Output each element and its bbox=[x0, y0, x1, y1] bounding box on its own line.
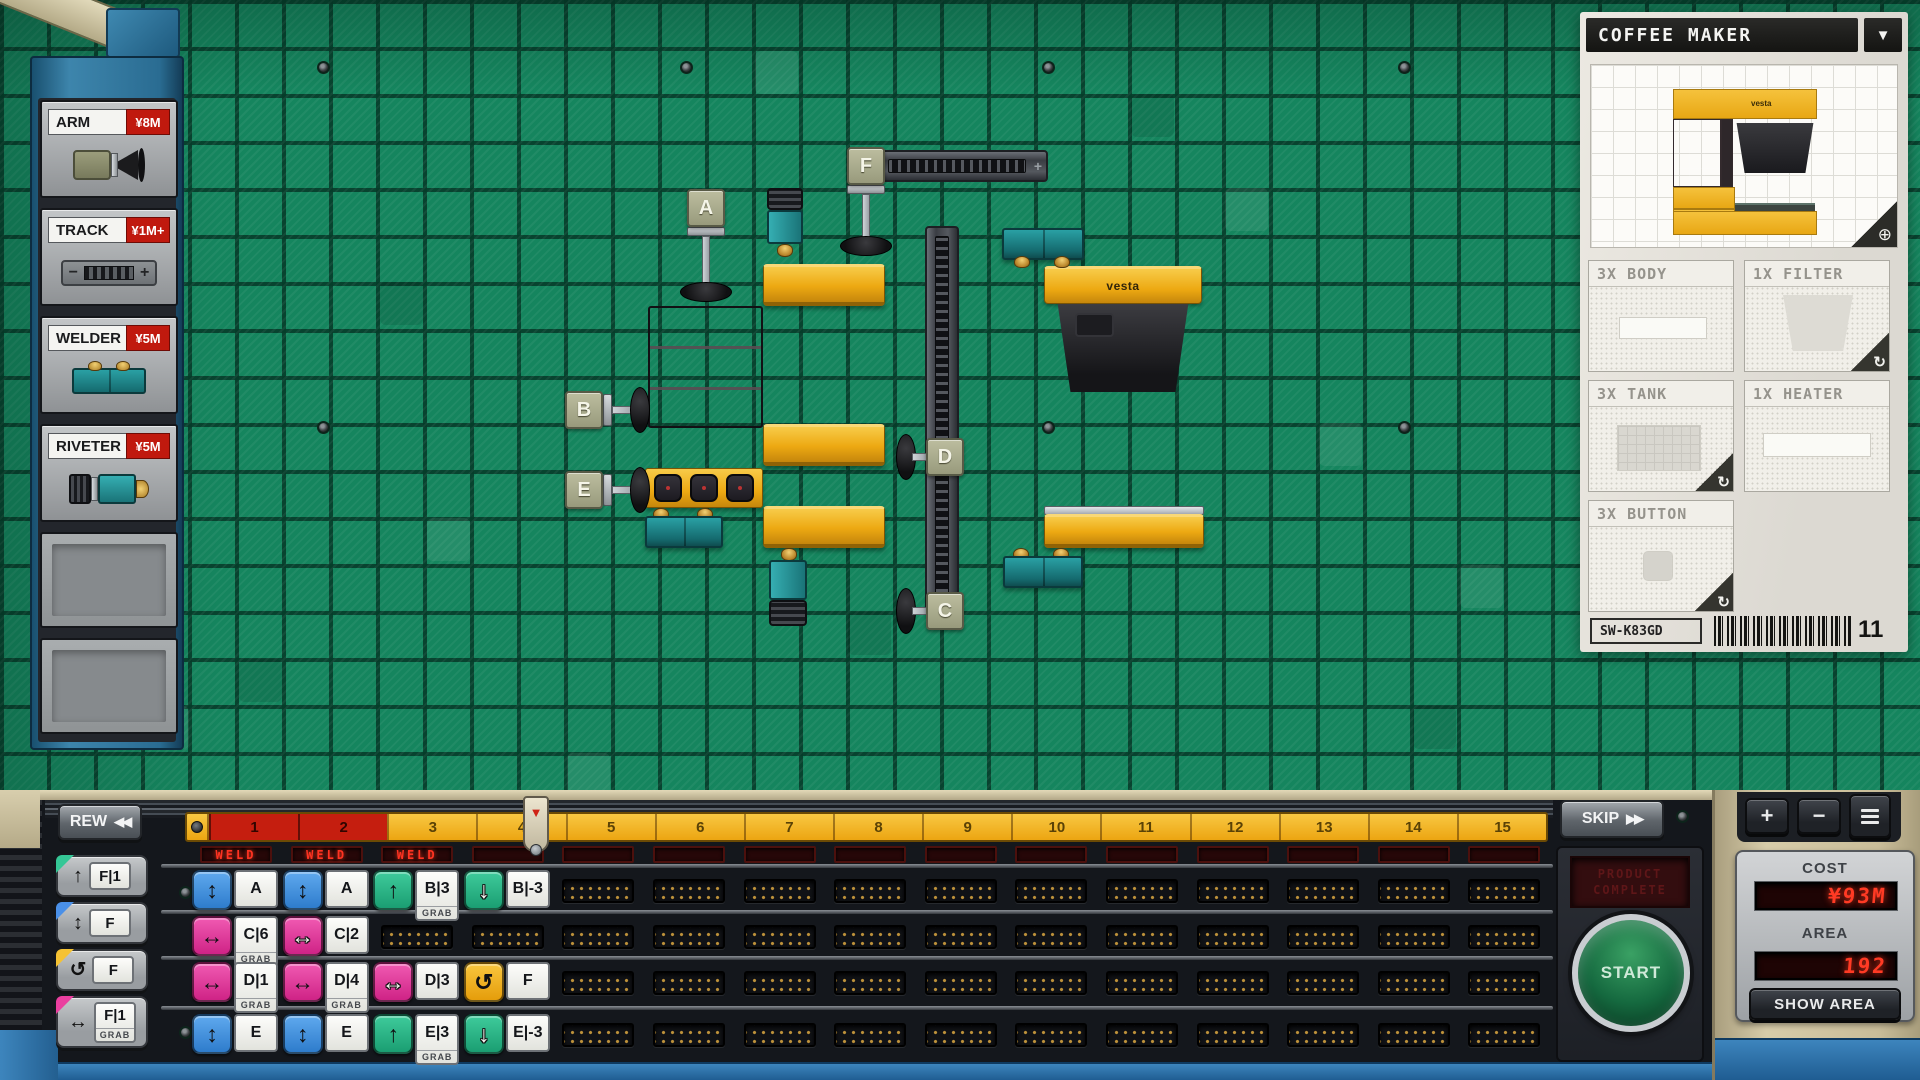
shop-item-riveter[interactable]: RIVETER ¥5M bbox=[40, 424, 178, 522]
conveyor[interactable] bbox=[763, 264, 885, 306]
arm-icon-lip bbox=[138, 148, 145, 182]
track-icon-slot bbox=[84, 266, 134, 280]
move-horizontal-icon: ↔ bbox=[373, 962, 413, 1002]
welder-nozzle bbox=[1014, 256, 1030, 268]
command-tile[interactable]: ↓B|-3 bbox=[464, 870, 550, 910]
palette-color-corner bbox=[56, 855, 74, 873]
welder-icon-seam bbox=[109, 370, 111, 392]
status-screen: PRODUCT COMPLETE bbox=[1570, 856, 1690, 908]
empty-socket[interactable] bbox=[1378, 971, 1450, 995]
raise-icon: ↑ bbox=[73, 866, 83, 886]
grab-label: GRAB bbox=[417, 1050, 457, 1063]
welder-machine[interactable] bbox=[1002, 228, 1084, 260]
command-text: F bbox=[91, 911, 129, 935]
part-box-tank: 3X TANK ↻ bbox=[1588, 380, 1734, 492]
arm-letter: F bbox=[860, 155, 872, 178]
rewind-label: REW bbox=[70, 813, 107, 831]
empty-socket[interactable] bbox=[653, 971, 725, 995]
timeline-led bbox=[1015, 846, 1087, 863]
move-vertical-icon: ↕ bbox=[192, 870, 232, 910]
ruler-segment[interactable]: 1 bbox=[209, 814, 298, 840]
skip-label: SKIP bbox=[1582, 810, 1619, 828]
arm-letter: C bbox=[938, 600, 952, 623]
blueprint-preview: vesta ⊕ bbox=[1590, 64, 1898, 248]
status-line: COMPLETE bbox=[1593, 883, 1667, 897]
rotate-icon: ↺ bbox=[464, 962, 504, 1002]
empty-socket[interactable] bbox=[925, 925, 997, 949]
floor-screw bbox=[317, 421, 330, 434]
welder-machine[interactable] bbox=[645, 516, 723, 548]
arm-icon-cone bbox=[118, 150, 138, 180]
arm-suction-cup bbox=[680, 282, 732, 302]
ruler-segment[interactable]: 2 bbox=[298, 814, 387, 840]
riveter-machine[interactable] bbox=[769, 560, 807, 600]
arm-tag-e[interactable]: E bbox=[565, 471, 603, 509]
move-vertical-icon: ↕ bbox=[283, 870, 323, 910]
welder-icon-body bbox=[72, 368, 146, 394]
command-tile[interactable]: ↔D|3 bbox=[373, 962, 459, 1002]
arm-icon-ring bbox=[111, 153, 118, 177]
timeline-led bbox=[1197, 846, 1269, 863]
floor-screw bbox=[317, 61, 330, 74]
command-plate: C|6GRAB bbox=[234, 916, 278, 967]
product-panel: COFFEE MAKER ▼ vesta ⊕ 3X BODY 1X FILTER… bbox=[1580, 12, 1908, 652]
empty-socket[interactable] bbox=[562, 1023, 634, 1047]
empty-socket[interactable] bbox=[562, 879, 634, 903]
shop-item-arm[interactable]: ARM ¥8M bbox=[40, 100, 178, 198]
filter-part[interactable] bbox=[1052, 304, 1194, 392]
empty-socket[interactable] bbox=[653, 879, 725, 903]
command-tile[interactable]: ↔C|2 bbox=[283, 916, 369, 956]
arm-icon-body bbox=[73, 150, 111, 180]
led-text: WELD bbox=[397, 848, 438, 862]
start-button[interactable]: START bbox=[1572, 914, 1690, 1032]
command-text: A bbox=[327, 872, 367, 906]
floor-patch bbox=[239, 659, 282, 702]
empty-socket[interactable] bbox=[834, 879, 906, 903]
floor-screw bbox=[1398, 61, 1411, 74]
empty-socket[interactable] bbox=[1468, 925, 1540, 949]
preview-body bbox=[1673, 119, 1721, 187]
empty-socket[interactable] bbox=[1287, 971, 1359, 995]
minus-icon: − bbox=[69, 264, 78, 282]
preview-brand: vesta bbox=[1751, 99, 1771, 108]
part-thumb-body bbox=[1619, 317, 1707, 339]
part-thumb-filter bbox=[1783, 295, 1853, 351]
command-tile[interactable]: ↑E|3GRAB bbox=[373, 1014, 459, 1065]
shop-item-price: ¥5M bbox=[126, 325, 170, 351]
button-strip-part[interactable] bbox=[645, 468, 763, 508]
cost-label: COST bbox=[1737, 860, 1913, 877]
rotate-icon: ↺ bbox=[70, 960, 87, 980]
command-tile[interactable]: ↔C|6GRAB bbox=[192, 916, 278, 967]
move-vertical-icon: ↕ bbox=[73, 913, 83, 933]
ruler-segment[interactable]: 10 bbox=[1011, 814, 1100, 840]
command-text: D|4 bbox=[327, 964, 367, 998]
floor-patch bbox=[427, 518, 470, 561]
preview-base bbox=[1673, 211, 1817, 235]
command-text: D|1 bbox=[236, 964, 276, 998]
arm-collar bbox=[687, 227, 725, 236]
command-plate: D|3 bbox=[415, 962, 459, 1000]
command-plate: F|1 bbox=[89, 862, 131, 890]
floor-patch bbox=[1319, 423, 1362, 466]
ruler-segment[interactable]: 3 bbox=[387, 814, 476, 840]
arm-tag-a[interactable]: A bbox=[687, 189, 725, 227]
ruler-segment[interactable]: 13 bbox=[1279, 814, 1368, 840]
timeline-led bbox=[653, 846, 725, 863]
riveter-icon-ring bbox=[91, 477, 98, 501]
show-area-label: SHOW AREA bbox=[1774, 996, 1876, 1013]
shop-item-name: RIVETER bbox=[48, 433, 130, 459]
track-extend-icon: + bbox=[1034, 158, 1042, 174]
empty-socket[interactable] bbox=[1287, 925, 1359, 949]
command-text: B|3 bbox=[417, 872, 457, 906]
command-tile[interactable]: ↕E bbox=[192, 1014, 278, 1054]
empty-socket[interactable] bbox=[653, 925, 725, 949]
empty-socket[interactable] bbox=[562, 971, 634, 995]
command-tile[interactable]: ↕A bbox=[192, 870, 278, 910]
product-count: 11 bbox=[1858, 616, 1883, 644]
empty-socket[interactable] bbox=[1106, 1023, 1178, 1047]
track-slot bbox=[935, 236, 949, 602]
command-tile[interactable]: ↓E|-3 bbox=[464, 1014, 550, 1054]
ruler-segment[interactable]: 9 bbox=[922, 814, 1011, 840]
move-horizontal-icon: ↔ bbox=[192, 916, 232, 956]
empty-socket[interactable] bbox=[1197, 971, 1269, 995]
lower-icon: ↓ bbox=[464, 870, 504, 910]
rotate-icon: ↻ bbox=[1717, 593, 1730, 611]
dropdown-arrow-icon[interactable]: ▼ bbox=[1864, 18, 1902, 52]
arm-tag-d[interactable]: D bbox=[926, 438, 964, 476]
arm-collar bbox=[603, 394, 612, 426]
stats-panel: COST ¥93M AREA 192 SHOW AREA bbox=[1735, 850, 1915, 1022]
playhead-marker-icon: ▼ bbox=[530, 805, 543, 820]
empty-socket[interactable] bbox=[744, 925, 816, 949]
empty-recess bbox=[52, 544, 166, 616]
area-label: AREA bbox=[1737, 925, 1913, 942]
sequencer: 123456789101112131415 ▼ WELD↕A↔C|6GRAB↔D… bbox=[153, 790, 1553, 1062]
empty-socket[interactable] bbox=[1106, 879, 1178, 903]
floor-patch bbox=[380, 282, 423, 325]
rotate-corner[interactable]: ↻ bbox=[1695, 453, 1733, 491]
ruler-segment[interactable]: 11 bbox=[1100, 814, 1189, 840]
timeline-led: WELD bbox=[381, 846, 453, 863]
part-box-filter: 1X FILTER ↻ bbox=[1744, 260, 1890, 372]
sequencer-grid: WELD↕A↔C|6GRAB↔D|1GRAB↕EWELD↕A↔C|2↔D|4GR… bbox=[192, 846, 1557, 1062]
timeline-led bbox=[925, 846, 997, 863]
empty-socket[interactable] bbox=[1015, 1023, 1087, 1047]
command-text: F bbox=[94, 958, 132, 982]
empty-socket[interactable] bbox=[1378, 925, 1450, 949]
pod-base bbox=[1715, 1038, 1920, 1080]
move-horizontal-icon: ↔ bbox=[192, 962, 232, 1002]
command-text: D|3 bbox=[417, 964, 457, 998]
welder-machine[interactable] bbox=[1003, 556, 1083, 588]
command-plate: E|-3 bbox=[506, 1014, 550, 1052]
preview-lid bbox=[1673, 89, 1817, 119]
part-box-heater: 1X HEATER bbox=[1744, 380, 1890, 492]
empty-socket[interactable] bbox=[1015, 879, 1087, 903]
shop-empty-slot bbox=[40, 532, 178, 628]
command-text: E bbox=[327, 1016, 367, 1050]
floor-patch bbox=[848, 612, 891, 655]
shop-item-price: ¥8M bbox=[126, 109, 170, 135]
command-tile[interactable]: ↕E bbox=[283, 1014, 369, 1054]
palette-rotate-command[interactable]: ↺ F bbox=[56, 949, 148, 991]
empty-socket[interactable] bbox=[834, 1023, 906, 1047]
part-thumb-heater bbox=[1763, 433, 1871, 457]
product-selector[interactable]: COFFEE MAKER bbox=[1586, 18, 1858, 52]
show-area-button[interactable]: SHOW AREA bbox=[1749, 988, 1901, 1020]
command-tile[interactable]: ↕A bbox=[283, 870, 369, 910]
empty-socket[interactable] bbox=[1015, 971, 1087, 995]
vertical-track[interactable] bbox=[925, 226, 959, 612]
command-plate: F bbox=[92, 956, 134, 984]
command-plate: A bbox=[234, 870, 278, 908]
plus-icon: + bbox=[140, 264, 149, 282]
rotate-icon: ↻ bbox=[1873, 353, 1886, 371]
empty-socket[interactable] bbox=[1468, 879, 1540, 903]
rotate-icon: ↻ bbox=[1717, 473, 1730, 491]
ruler-segment[interactable]: 6 bbox=[655, 814, 744, 840]
empty-socket[interactable] bbox=[472, 925, 544, 949]
grab-label: GRAB bbox=[236, 998, 276, 1011]
app: + vesta bbox=[0, 0, 1920, 1080]
ruler-segment[interactable]: 5 bbox=[566, 814, 655, 840]
conveyor[interactable] bbox=[763, 506, 885, 548]
horizontal-track[interactable]: + bbox=[880, 150, 1048, 182]
empty-socket[interactable] bbox=[925, 971, 997, 995]
timeline-led bbox=[562, 846, 634, 863]
arm-suction-cup bbox=[630, 387, 650, 433]
ruler-screw bbox=[191, 821, 203, 833]
ruler-segment[interactable]: 7 bbox=[744, 814, 833, 840]
empty-socket[interactable] bbox=[1378, 1023, 1450, 1047]
preview-mid bbox=[1673, 187, 1735, 209]
part-thumb-tank bbox=[1617, 425, 1701, 471]
track-icon-bar: − + bbox=[61, 260, 157, 286]
ruler-segment[interactable]: 8 bbox=[833, 814, 922, 840]
zoom-out-button[interactable]: − bbox=[1797, 798, 1841, 834]
command-tile[interactable]: ↔D|1GRAB bbox=[192, 962, 278, 1013]
command-plate: C|2 bbox=[325, 916, 369, 954]
led-text: WELD bbox=[306, 848, 347, 862]
arm-letter: D bbox=[938, 446, 952, 469]
start-label: START bbox=[1601, 963, 1661, 983]
empty-socket[interactable] bbox=[1468, 1023, 1540, 1047]
floor-patch bbox=[1225, 188, 1268, 231]
command-plate: F bbox=[89, 909, 131, 937]
zoom-corner[interactable]: ⊕ bbox=[1851, 201, 1897, 247]
command-text: F|1 bbox=[96, 1004, 134, 1028]
coffee-maker-lid-part[interactable]: vesta bbox=[1044, 266, 1202, 304]
console-corner bbox=[0, 790, 40, 848]
arm-rod bbox=[702, 236, 710, 284]
empty-socket[interactable] bbox=[1197, 925, 1269, 949]
command-text: F bbox=[508, 964, 548, 998]
empty-socket[interactable] bbox=[653, 1023, 725, 1047]
welder-icon bbox=[48, 356, 170, 406]
palette-move-vertical-command[interactable]: ↕ F bbox=[56, 902, 148, 944]
grab-label: GRAB bbox=[417, 906, 457, 919]
command-plate: E|3GRAB bbox=[415, 1014, 459, 1065]
ruler-segment[interactable]: 12 bbox=[1190, 814, 1279, 840]
track-slot bbox=[888, 159, 1026, 173]
ruler-segment[interactable]: 14 bbox=[1368, 814, 1457, 840]
empty-socket[interactable] bbox=[1106, 925, 1178, 949]
empty-socket[interactable] bbox=[925, 879, 997, 903]
command-plate: B|-3 bbox=[506, 870, 550, 908]
move-horizontal-icon: ↔ bbox=[68, 1012, 88, 1032]
preview-base-plate bbox=[1735, 203, 1815, 211]
empty-recess bbox=[52, 650, 166, 722]
welder-seam bbox=[684, 518, 686, 546]
command-plate: F bbox=[506, 962, 550, 1000]
menu-icon bbox=[1861, 809, 1879, 824]
riveter-cap bbox=[769, 600, 807, 626]
arm-collar bbox=[847, 185, 885, 194]
empty-socket[interactable] bbox=[834, 971, 906, 995]
empty-socket[interactable] bbox=[1197, 879, 1269, 903]
grab-label: GRAB bbox=[327, 998, 367, 1011]
raise-icon: ↑ bbox=[373, 870, 413, 910]
arm-suction-cup bbox=[630, 467, 650, 513]
barcode bbox=[1714, 616, 1852, 646]
feeder-joint bbox=[106, 8, 180, 58]
playhead[interactable]: ▼ bbox=[523, 796, 549, 852]
lower-icon: ↓ bbox=[464, 1014, 504, 1054]
button-part bbox=[654, 474, 682, 502]
ruler-segment[interactable]: 4 bbox=[476, 814, 565, 840]
arm-suction-cup bbox=[840, 236, 892, 256]
riveter-icon-body bbox=[98, 474, 136, 504]
riveter-machine[interactable] bbox=[767, 188, 803, 210]
shop-empty-slot bbox=[40, 638, 178, 734]
stats-pod: + − COST ¥93M AREA 192 SHOW AREA bbox=[1712, 790, 1920, 1080]
empty-socket[interactable] bbox=[744, 1023, 816, 1047]
command-plate: A bbox=[325, 870, 369, 908]
command-plate: D|1GRAB bbox=[234, 962, 278, 1013]
panel-screw bbox=[179, 1026, 192, 1039]
body-part-stack[interactable] bbox=[648, 306, 763, 428]
empty-socket[interactable] bbox=[1015, 925, 1087, 949]
cost-value: ¥93M bbox=[1827, 884, 1888, 908]
rewind-button[interactable]: REW ◀◀ bbox=[58, 804, 142, 840]
timeline-led bbox=[1378, 846, 1450, 863]
command-tile[interactable]: ↔D|4GRAB bbox=[283, 962, 369, 1013]
area-display: 192 bbox=[1755, 952, 1897, 980]
arm-tag-c[interactable]: C bbox=[926, 592, 964, 630]
status-line: PRODUCT bbox=[1598, 867, 1663, 881]
arm-letter: E bbox=[577, 479, 590, 502]
menu-button[interactable] bbox=[1849, 794, 1891, 838]
floor-screw bbox=[1042, 61, 1055, 74]
empty-socket[interactable] bbox=[1378, 879, 1450, 903]
riveter-body bbox=[767, 210, 803, 244]
riveter-tip bbox=[777, 244, 793, 257]
empty-socket[interactable] bbox=[744, 879, 816, 903]
part-label: 3X TANK bbox=[1589, 381, 1733, 407]
timeline-led: WELD bbox=[200, 846, 272, 863]
welder-nozzle bbox=[1054, 256, 1070, 268]
command-tile[interactable]: ↑B|3GRAB bbox=[373, 870, 459, 921]
empty-socket[interactable] bbox=[1468, 971, 1540, 995]
empty-socket[interactable] bbox=[834, 925, 906, 949]
ruler-segment[interactable]: 15 bbox=[1457, 814, 1546, 840]
skip-button[interactable]: SKIP ▶▶ bbox=[1560, 800, 1664, 838]
empty-socket[interactable] bbox=[1287, 879, 1359, 903]
arm-rod bbox=[862, 194, 870, 238]
floor-patch bbox=[1413, 706, 1456, 749]
riveter-icon bbox=[48, 464, 170, 514]
floor-patch bbox=[1131, 94, 1174, 137]
command-plate: E bbox=[325, 1014, 369, 1052]
command-text: B|-3 bbox=[508, 872, 548, 906]
shop-item-track[interactable]: TRACK ¥1M+ − + bbox=[40, 208, 178, 306]
zoom-in-button[interactable]: + bbox=[1745, 798, 1789, 834]
shop-item-welder[interactable]: WELDER ¥5M bbox=[40, 316, 178, 414]
empty-socket[interactable] bbox=[381, 925, 453, 949]
welder-icon-nozzle bbox=[88, 361, 102, 371]
empty-socket[interactable] bbox=[1287, 1023, 1359, 1047]
floor-patch bbox=[1460, 565, 1503, 608]
command-plate: F|1 GRAB bbox=[94, 1002, 136, 1043]
rotate-corner[interactable]: ↻ bbox=[1695, 573, 1733, 611]
part-label: 3X BODY bbox=[1589, 261, 1733, 287]
command-tile[interactable]: ↺F bbox=[464, 962, 550, 1002]
timeline-led bbox=[744, 846, 816, 863]
arm-tag-f[interactable]: F bbox=[847, 147, 885, 185]
arm-icon bbox=[48, 140, 170, 190]
command-text: F|1 bbox=[91, 864, 129, 888]
conveyor[interactable] bbox=[1044, 514, 1204, 548]
welder-seam bbox=[1043, 230, 1045, 258]
part-label: 3X BUTTON bbox=[1589, 501, 1733, 527]
empty-socket[interactable] bbox=[1197, 1023, 1269, 1047]
move-vertical-icon: ↕ bbox=[283, 1014, 323, 1054]
arm-tag-b[interactable]: B bbox=[565, 391, 603, 429]
palette-move-horizontal-command[interactable]: ↔ F|1 GRAB bbox=[56, 996, 148, 1048]
palette-raise-command[interactable]: ↑ F|1 bbox=[56, 855, 148, 897]
floor-patch bbox=[755, 51, 798, 94]
rotate-corner[interactable]: ↻ bbox=[1851, 333, 1889, 371]
empty-socket[interactable] bbox=[744, 971, 816, 995]
move-vertical-icon: ↕ bbox=[192, 1014, 232, 1054]
program-console: REW ◀◀ ↑ F|1 ↕ F ↺ F ↔ F|1 GRAB bbox=[0, 790, 1920, 1080]
rewind-icon: ◀◀ bbox=[114, 814, 130, 830]
track-icon: − + bbox=[48, 248, 170, 298]
empty-socket[interactable] bbox=[1106, 971, 1178, 995]
raise-icon: ↑ bbox=[373, 1014, 413, 1054]
panel-screw bbox=[1676, 810, 1689, 823]
arm-letter: A bbox=[699, 197, 713, 220]
empty-socket[interactable] bbox=[925, 1023, 997, 1047]
command-text: E bbox=[236, 1016, 276, 1050]
conveyor[interactable] bbox=[763, 424, 885, 466]
plus-icon: + bbox=[1761, 803, 1774, 829]
magnifier-icon: ⊕ bbox=[1878, 225, 1892, 245]
ruler: 123456789101112131415 bbox=[185, 812, 1548, 842]
palette-color-corner bbox=[56, 902, 74, 920]
preview-body-slots bbox=[1721, 119, 1733, 187]
empty-socket[interactable] bbox=[562, 925, 634, 949]
timeline-led bbox=[1468, 846, 1540, 863]
console-base-left bbox=[0, 1030, 58, 1080]
part-label: 1X HEATER bbox=[1745, 381, 1889, 407]
welder-icon-nozzle bbox=[116, 361, 130, 371]
command-text: C|2 bbox=[327, 918, 367, 952]
